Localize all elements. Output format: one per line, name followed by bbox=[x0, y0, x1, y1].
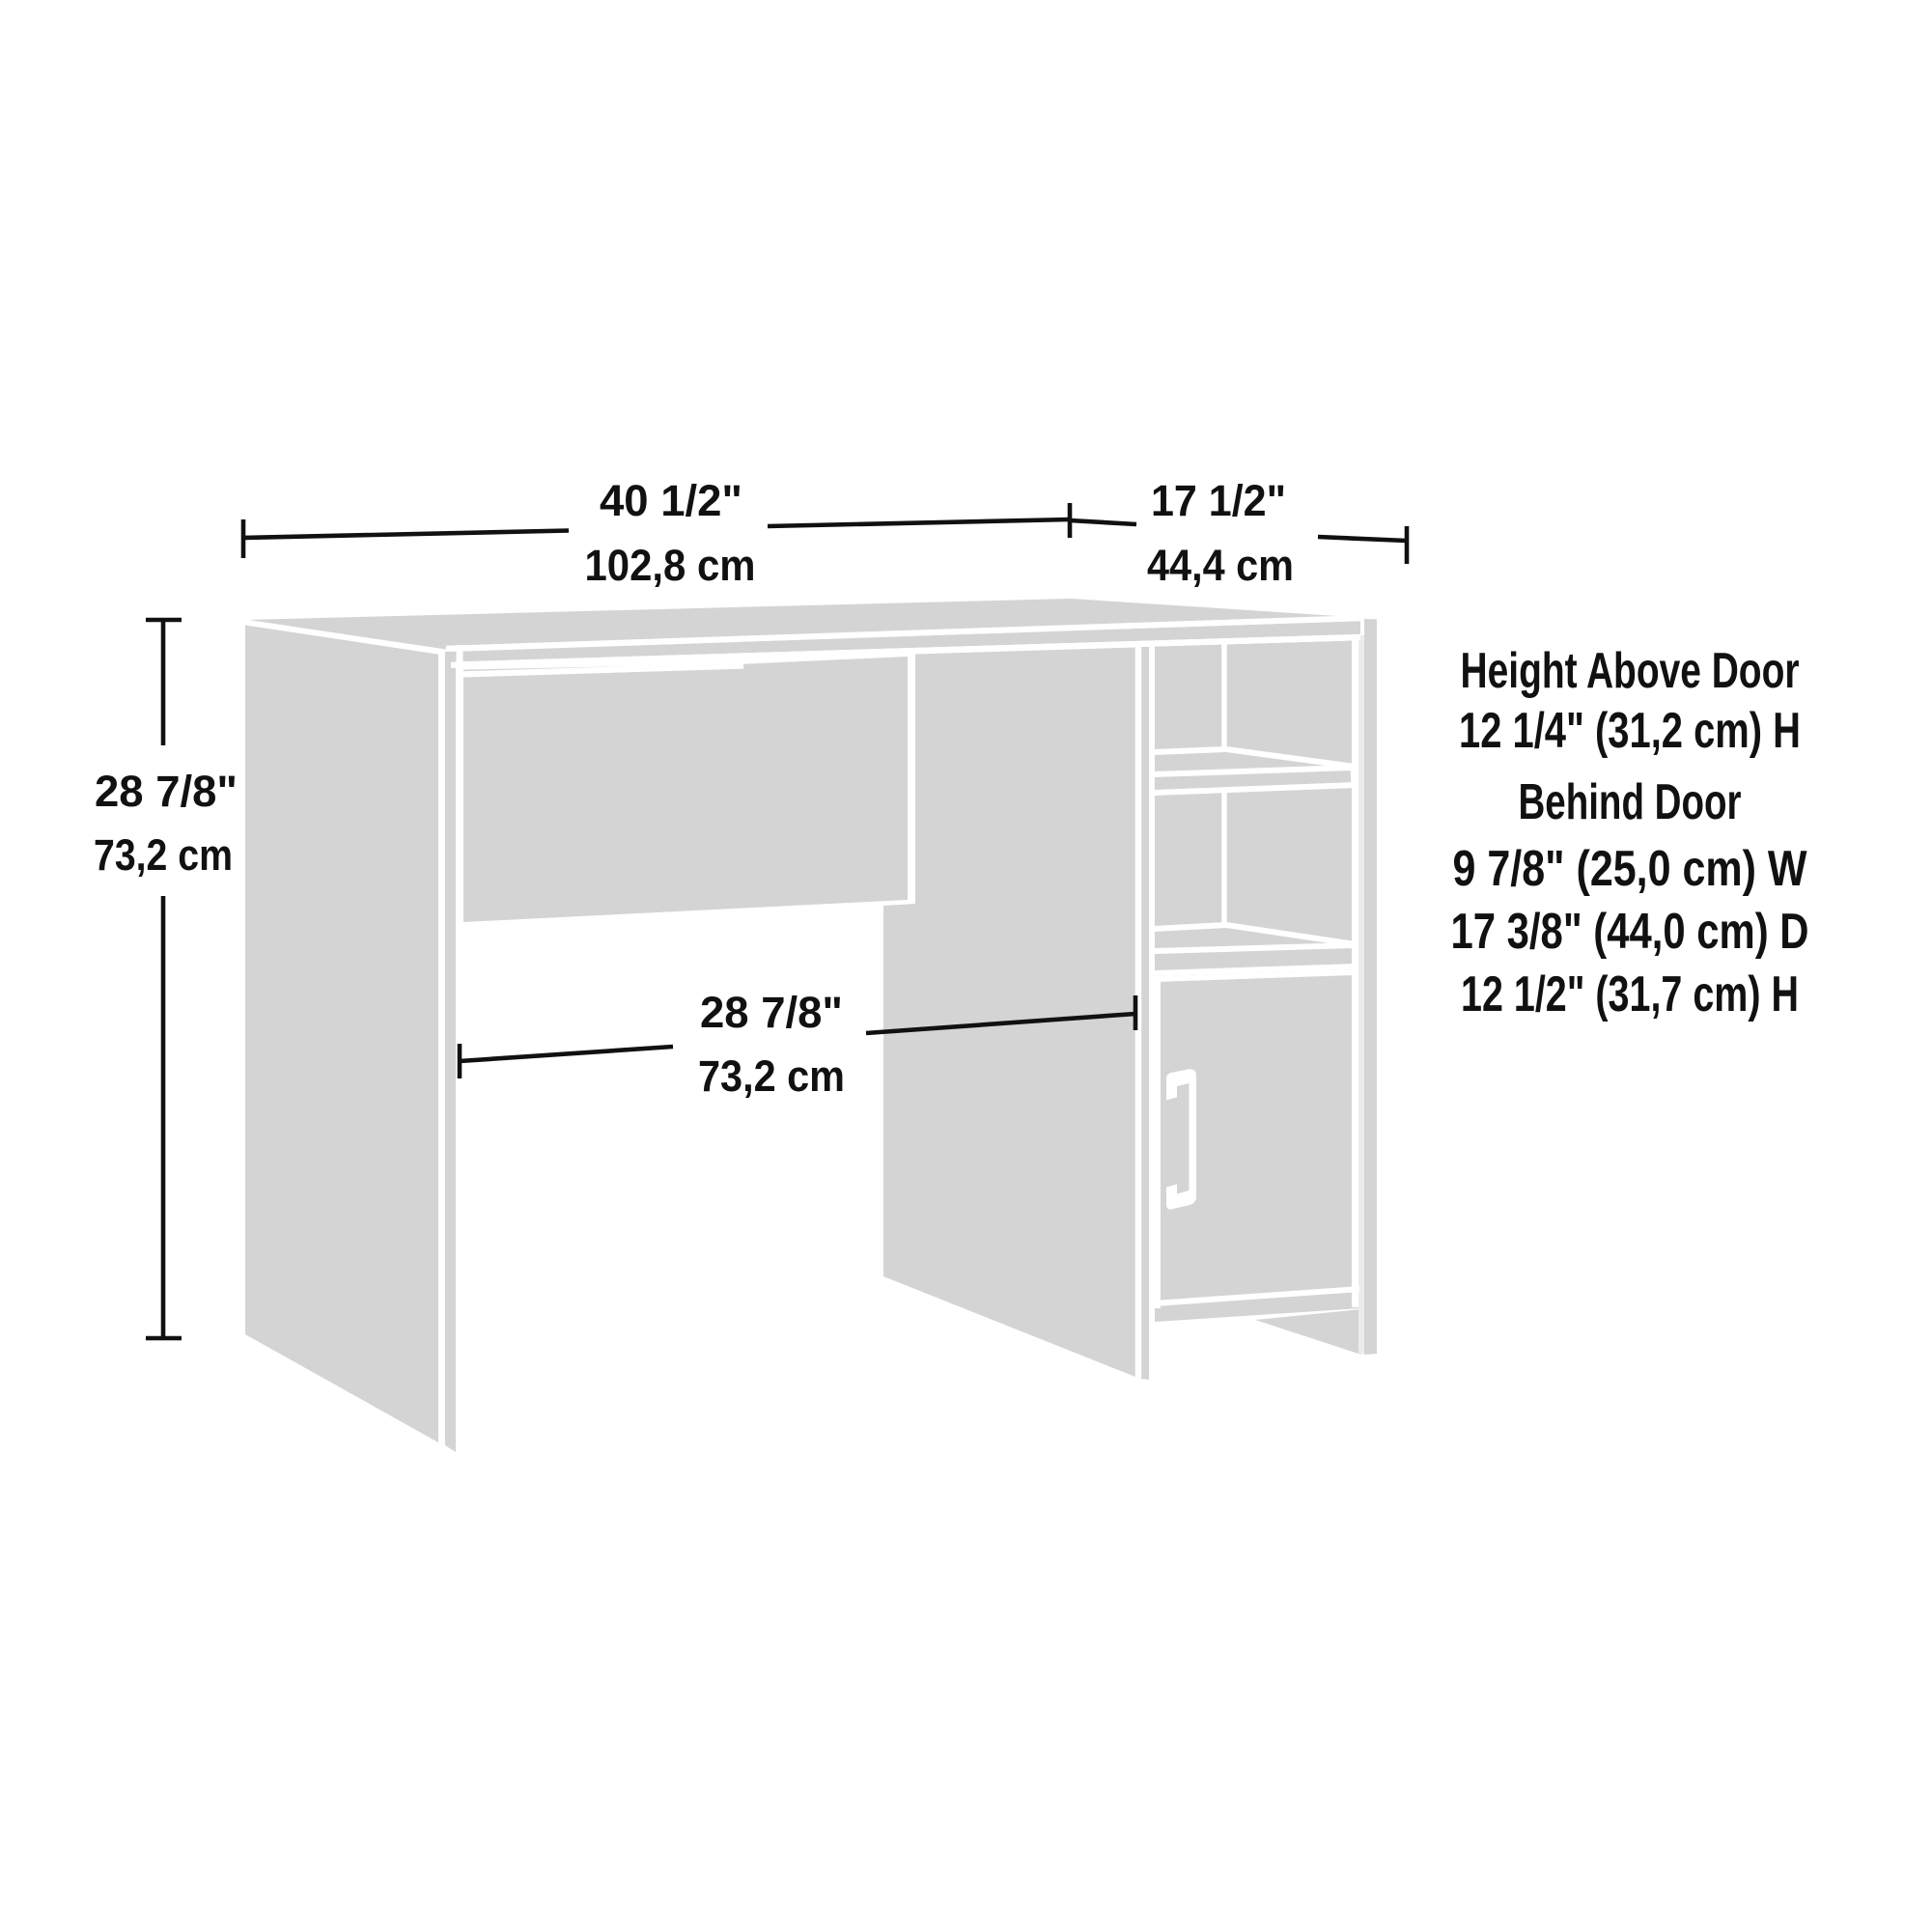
svg-text:73,2 cm: 73,2 cm bbox=[94, 830, 233, 880]
svg-text:17 3/8" (44,0 cm) D: 17 3/8" (44,0 cm) D bbox=[1451, 904, 1809, 960]
svg-text:102,8 cm: 102,8 cm bbox=[585, 541, 756, 590]
svg-text:73,2 cm: 73,2 cm bbox=[698, 1051, 845, 1101]
svg-text:44,4 cm: 44,4 cm bbox=[1147, 541, 1294, 590]
svg-text:9 7/8" (25,0 cm) W: 9 7/8" (25,0 cm) W bbox=[1453, 841, 1808, 897]
svg-text:Height Above Door: Height Above Door bbox=[1461, 643, 1800, 699]
svg-text:12 1/2" (31,7 cm) H: 12 1/2" (31,7 cm) H bbox=[1461, 966, 1799, 1022]
svg-text:28 7/8": 28 7/8" bbox=[95, 767, 238, 816]
svg-text:12 1/4" (31,2 cm) H: 12 1/4" (31,2 cm) H bbox=[1459, 703, 1801, 759]
svg-text:28 7/8": 28 7/8" bbox=[700, 988, 843, 1037]
svg-text:40 1/2": 40 1/2" bbox=[600, 476, 742, 525]
svg-text:Behind Door: Behind Door bbox=[1519, 774, 1742, 830]
svg-text:17 1/2": 17 1/2" bbox=[1151, 476, 1286, 525]
